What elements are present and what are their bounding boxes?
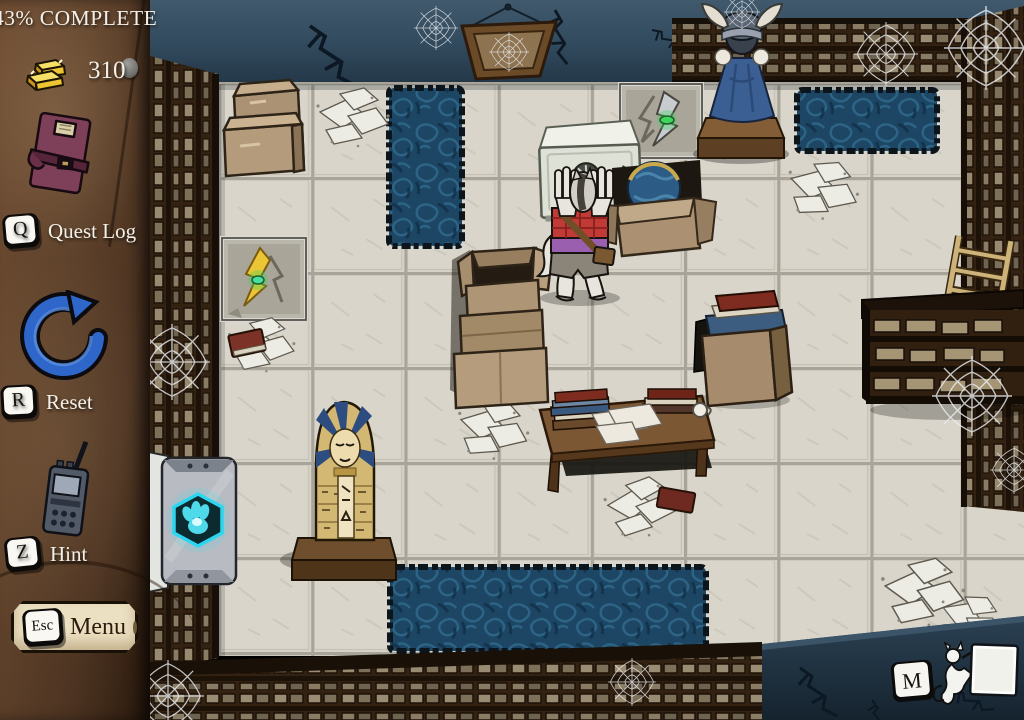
key-r: R	[0, 384, 38, 420]
key-esc: Esc	[22, 607, 64, 647]
switch-plate-gold	[222, 238, 306, 320]
svg-text:M: M	[901, 667, 923, 694]
map-slot[interactable]	[970, 644, 1018, 696]
journal-icon	[24, 109, 95, 200]
right-shelf-unit	[862, 290, 1024, 420]
reset-arrow-icon	[16, 290, 112, 384]
reset-button[interactable]: R Reset	[1, 385, 93, 419]
menu-label: Menu	[70, 614, 126, 641]
rug-top-right	[797, 90, 937, 151]
box-stack-top-left	[224, 80, 304, 176]
reset-label: Reset	[46, 390, 93, 415]
game-screen: M 43% COMPLETE	[0, 0, 1024, 720]
map-key[interactable]: M	[890, 659, 934, 702]
gold-counter: 310	[22, 50, 126, 92]
hint-button[interactable]: Z Hint	[5, 537, 87, 571]
exit-door	[150, 452, 236, 592]
game-scene-canvas: M	[150, 0, 1024, 720]
box-stack-center	[450, 248, 552, 408]
leather-seam	[108, 0, 147, 247]
quest-log-button[interactable]: Q Quest Log	[3, 214, 136, 248]
walkie-talkie-icon	[32, 435, 104, 546]
globe-box	[596, 160, 716, 256]
hint-label: Hint	[50, 542, 87, 567]
game-scene: M	[150, 0, 1024, 720]
gold-amount: 310	[88, 57, 126, 85]
quest-log-label: Quest Log	[48, 219, 136, 244]
key-q: Q	[2, 212, 41, 249]
hud-sidebar: 43% COMPLETE 310	[0, 0, 150, 720]
rug-vertical	[389, 88, 462, 246]
progress-label: 43% COMPLETE	[0, 6, 157, 31]
rug-bottom	[390, 567, 706, 651]
gold-bars-icon	[22, 50, 76, 92]
key-z: Z	[3, 535, 42, 573]
menu-button[interactable]: Esc Menu	[11, 601, 138, 653]
plaque-hole	[133, 621, 137, 634]
